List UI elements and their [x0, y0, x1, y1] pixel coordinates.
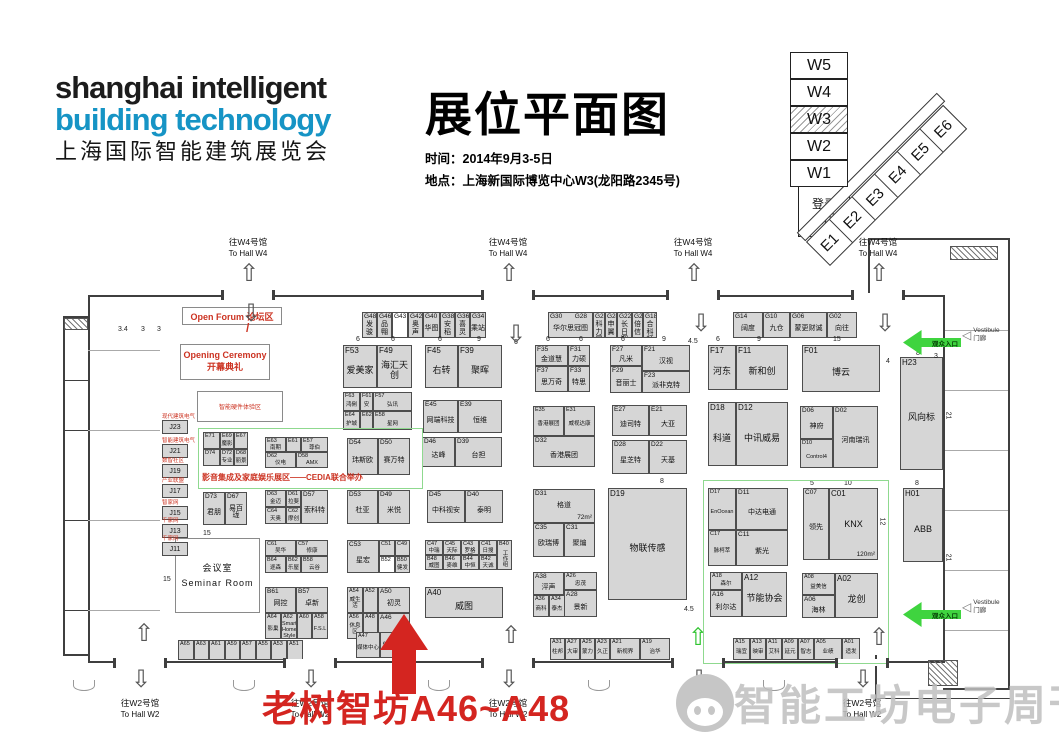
red-highlight-arrow — [0, 0, 1059, 749]
panda-logo-icon — [676, 674, 734, 732]
floorplan-page: shanghai intelligent building technology… — [0, 0, 1059, 749]
booth-highlight-annotation: 老树智坊A46~A48 — [262, 680, 570, 732]
watermark-text: 智能工坊电子周刊 — [734, 672, 1059, 733]
watermark: 智能工坊电子周刊 — [676, 672, 1059, 733]
